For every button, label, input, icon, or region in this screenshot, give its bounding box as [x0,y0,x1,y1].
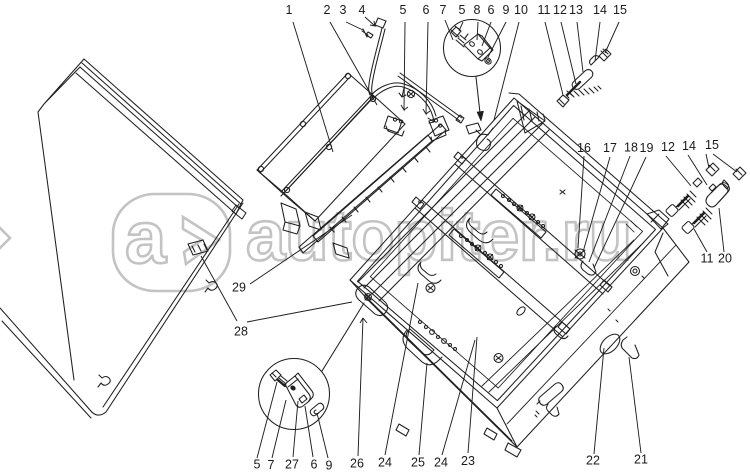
svg-text:7: 7 [440,3,447,17]
svg-text:19: 19 [640,141,654,155]
svg-text:autopiter.ru: autopiter.ru [246,197,632,276]
svg-text:18: 18 [624,141,638,155]
svg-text:5: 5 [400,3,407,17]
svg-text:12: 12 [661,140,675,154]
svg-text:6: 6 [423,3,430,17]
svg-text:23: 23 [461,454,475,468]
svg-text:9: 9 [326,459,333,473]
svg-text:11: 11 [701,252,714,266]
svg-text:2: 2 [324,3,331,17]
svg-text:24: 24 [434,456,448,470]
svg-text:15: 15 [613,3,627,17]
svg-text:14: 14 [593,3,607,17]
svg-text:5: 5 [254,458,261,472]
svg-text:13: 13 [569,3,583,17]
svg-text:29: 29 [232,281,246,295]
svg-text:24: 24 [378,456,392,470]
svg-text:6: 6 [488,3,495,17]
svg-text:5: 5 [459,3,466,17]
svg-text:3: 3 [340,3,347,17]
svg-text:15: 15 [705,138,719,152]
svg-text:25: 25 [411,456,425,470]
svg-text:16: 16 [577,141,591,155]
svg-text:4: 4 [359,3,366,17]
svg-text:1: 1 [286,3,293,17]
svg-text:12: 12 [553,3,567,17]
svg-text:20: 20 [718,252,732,266]
svg-text:21: 21 [634,453,648,467]
svg-text:28: 28 [234,325,248,339]
svg-text:11: 11 [538,3,551,17]
svg-text:26: 26 [350,457,364,471]
svg-text:17: 17 [603,141,617,155]
svg-text:a: a [125,196,167,279]
svg-text:9: 9 [503,3,510,17]
svg-text:10: 10 [514,3,528,17]
svg-text:8: 8 [474,3,481,17]
svg-text:14: 14 [682,139,696,153]
svg-text:22: 22 [586,454,600,468]
svg-text:6: 6 [311,458,318,472]
svg-text:27: 27 [285,458,299,472]
svg-text:7: 7 [268,458,275,472]
